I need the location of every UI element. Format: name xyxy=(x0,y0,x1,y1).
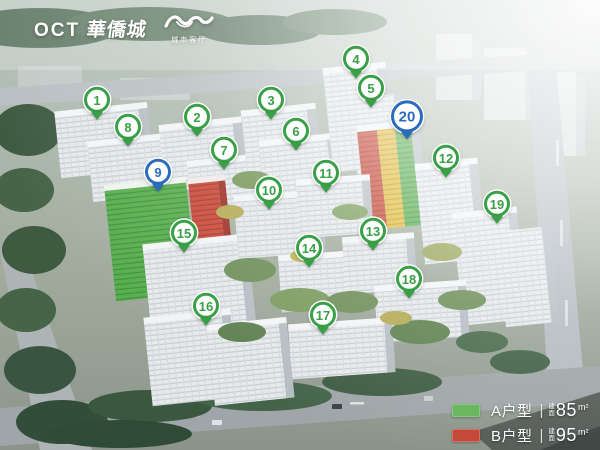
marker-pointer xyxy=(403,291,415,299)
marker-pointer xyxy=(440,170,452,178)
logo-bar: OCT 華僑城 城市客厅 xyxy=(34,12,215,45)
building-marker-6[interactable]: 6 xyxy=(283,118,309,151)
oct-logo: OCT 華僑城 xyxy=(34,15,147,42)
marker-number: 13 xyxy=(360,218,386,244)
legend-area-unit: m² xyxy=(578,427,589,437)
building-marker-20[interactable]: 20 xyxy=(391,100,423,139)
marker-number: 12 xyxy=(433,145,459,171)
marker-number: 6 xyxy=(283,118,309,144)
legend-separator: | xyxy=(540,427,544,444)
unit-type-legend: A户型|建面85m²B户型|建面95m² xyxy=(452,399,588,450)
building-marker-18[interactable]: 18 xyxy=(396,266,422,299)
building-marker-10[interactable]: 10 xyxy=(256,177,282,210)
building-marker-7[interactable]: 7 xyxy=(211,137,237,170)
marker-pointer xyxy=(303,260,315,268)
marker-pointer xyxy=(218,162,230,170)
marker-number: 11 xyxy=(313,160,339,186)
marker-pointer xyxy=(263,202,275,210)
marker-number: 5 xyxy=(358,75,384,101)
legend-area-prefix: 建面 xyxy=(548,429,555,442)
marker-number: 14 xyxy=(296,235,322,261)
building-marker-9[interactable]: 9 xyxy=(145,159,171,192)
legend-separator: | xyxy=(540,402,544,419)
marker-pointer xyxy=(178,245,190,253)
marker-pointer xyxy=(91,112,103,120)
oct-logo-name: 華僑城 xyxy=(85,15,149,42)
building-marker-1[interactable]: 1 xyxy=(84,87,110,120)
building-marker-2[interactable]: 2 xyxy=(184,104,210,137)
marker-number: 16 xyxy=(193,293,219,319)
marker-pointer xyxy=(152,184,164,192)
marker-number: 8 xyxy=(115,114,141,140)
aerial-site-plan: OCT 華僑城 城市客厅 123456789101112131415161718… xyxy=(0,0,600,450)
marker-number: 2 xyxy=(184,104,210,130)
wave-logo: 城市客厅 xyxy=(163,12,215,45)
building-marker-15[interactable]: 15 xyxy=(171,220,197,253)
wave-logo-tagline: 城市客厅 xyxy=(171,35,207,45)
marker-number: 18 xyxy=(396,266,422,292)
building-marker-16[interactable]: 16 xyxy=(193,293,219,326)
legend-area-value: 95 xyxy=(556,425,577,446)
legend-swatch xyxy=(452,404,480,417)
marker-pointer xyxy=(290,143,302,151)
marker-number: 17 xyxy=(310,302,336,328)
marker-number: 20 xyxy=(391,100,423,132)
marker-pointer xyxy=(191,129,203,137)
marker-number: 4 xyxy=(343,46,369,72)
marker-pointer xyxy=(365,100,377,108)
legend-swatch xyxy=(452,429,480,442)
building-marker-14[interactable]: 14 xyxy=(296,235,322,268)
markers-layer: 1234567891011121314151617181920 xyxy=(0,0,600,450)
marker-pointer xyxy=(265,112,277,120)
legend-area-unit: m² xyxy=(578,402,589,412)
marker-pointer xyxy=(401,131,413,139)
marker-pointer xyxy=(491,216,503,224)
legend-type-label: A户型 xyxy=(491,400,533,421)
building-marker-13[interactable]: 13 xyxy=(360,218,386,251)
building-marker-5[interactable]: 5 xyxy=(358,75,384,108)
building-marker-17[interactable]: 17 xyxy=(310,302,336,335)
marker-pointer xyxy=(122,139,134,147)
marker-pointer xyxy=(320,185,332,193)
legend-area-prefix: 建面 xyxy=(548,404,555,417)
marker-number: 1 xyxy=(84,87,110,113)
marker-number: 3 xyxy=(258,87,284,113)
wave-icon xyxy=(163,12,215,34)
building-marker-12[interactable]: 12 xyxy=(433,145,459,178)
marker-pointer xyxy=(367,243,379,251)
legend-row-A户型: A户型|建面85m² xyxy=(452,399,588,422)
marker-pointer xyxy=(317,327,329,335)
legend-type-label: B户型 xyxy=(491,425,533,446)
building-marker-3[interactable]: 3 xyxy=(258,87,284,120)
building-marker-11[interactable]: 11 xyxy=(313,160,339,193)
building-marker-19[interactable]: 19 xyxy=(484,191,510,224)
legend-area-value: 85 xyxy=(556,400,577,421)
legend-row-B户型: B户型|建面95m² xyxy=(452,424,588,447)
marker-number: 9 xyxy=(145,159,171,185)
marker-number: 10 xyxy=(256,177,282,203)
marker-number: 7 xyxy=(211,137,237,163)
marker-number: 19 xyxy=(484,191,510,217)
marker-number: 15 xyxy=(171,220,197,246)
marker-pointer xyxy=(200,318,212,326)
oct-logo-abbr: OCT xyxy=(34,20,80,42)
building-marker-8[interactable]: 8 xyxy=(115,114,141,147)
